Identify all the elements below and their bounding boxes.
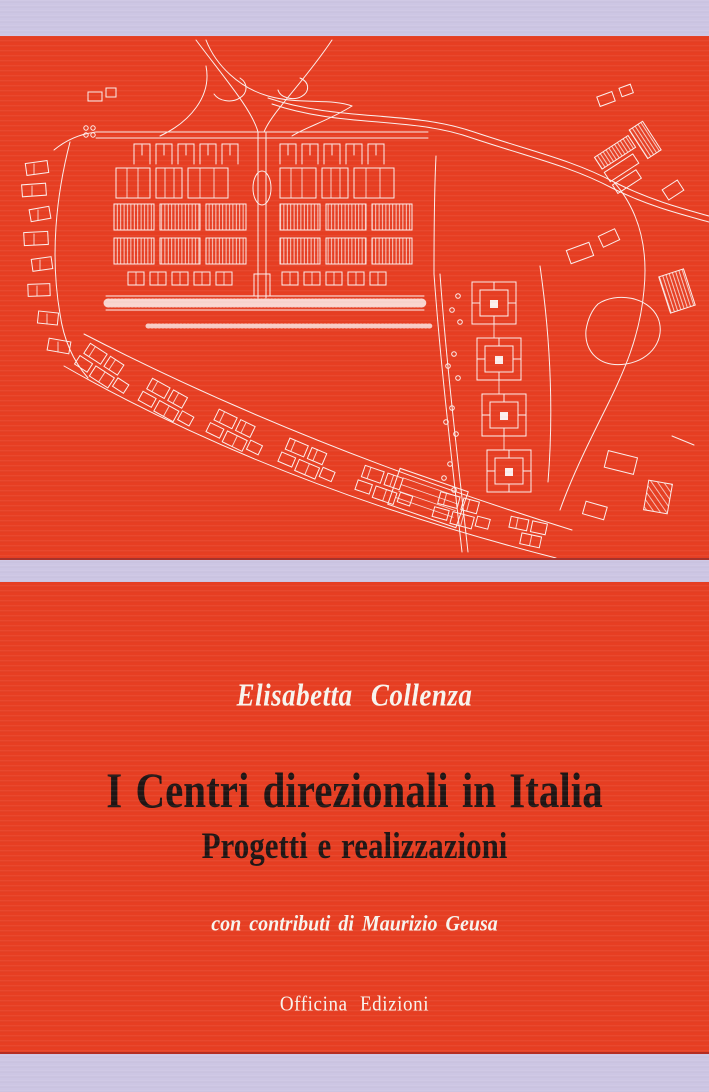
courtyard-building-chain xyxy=(434,156,551,552)
office-complex xyxy=(106,144,430,326)
cover-illustration-panel xyxy=(0,36,709,560)
contributor-note: con contributi di Maurizio Geusa xyxy=(0,912,709,938)
bottom-right-parcels xyxy=(582,436,694,520)
book-cover: Elisabetta Collenza I Centri direzionali… xyxy=(0,0,709,1092)
diagonal-housing-band xyxy=(64,334,572,558)
publisher-name: Officina Edizioni xyxy=(0,993,709,1017)
book-subtitle: Progetti e realizzazioni xyxy=(0,824,709,867)
mid-right-parcels xyxy=(566,229,695,365)
interchange-roads xyxy=(54,40,428,150)
cover-title-panel: Elisabetta Collenza I Centri direzionali… xyxy=(0,582,709,1054)
author-name: Elisabetta Collenza xyxy=(0,677,709,714)
urban-plan-map-illustration xyxy=(0,36,709,558)
upper-right-district xyxy=(592,84,684,200)
book-title: I Centri direzionali in Italia xyxy=(0,761,709,820)
central-axis xyxy=(253,132,271,298)
